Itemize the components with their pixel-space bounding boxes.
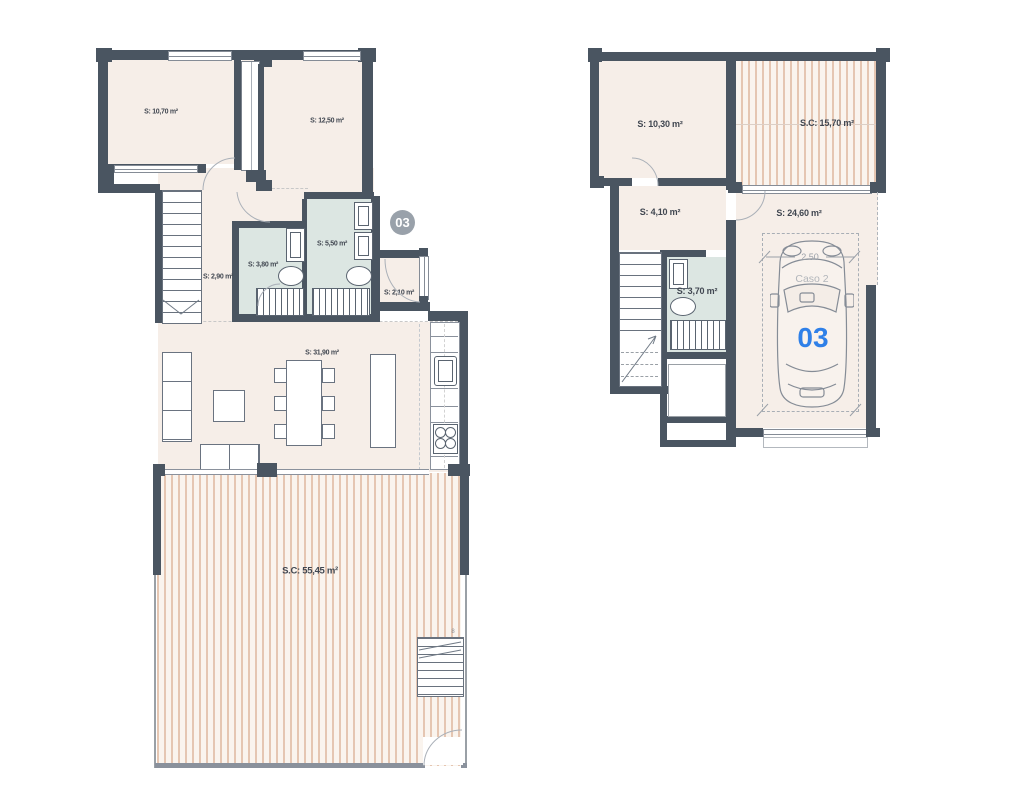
shower: [312, 288, 370, 316]
wall: [234, 221, 306, 228]
width-dimension: 2.50: [801, 252, 819, 262]
window: [419, 256, 429, 300]
room-label-bedroom: S: 10,30 m²: [637, 119, 682, 129]
toilet: [670, 297, 696, 316]
sofa: [200, 444, 260, 472]
wall: [98, 50, 108, 176]
room-label-bedroom1: S: 10,70 m²: [144, 109, 178, 116]
room-label-bath2: S: 5,50 m²: [317, 241, 347, 248]
sliding-door: [277, 469, 429, 475]
toilet: [278, 266, 304, 286]
sink: [354, 232, 373, 260]
wall: [257, 463, 277, 477]
window: [114, 165, 198, 173]
sliding-door: [165, 469, 257, 475]
wall: [665, 416, 726, 423]
wall: [234, 58, 241, 170]
wall: [736, 428, 763, 437]
coffee-table: [213, 390, 245, 422]
wall: [660, 440, 736, 447]
sofa: [162, 352, 192, 442]
sink: [286, 228, 305, 262]
toilet: [346, 266, 372, 286]
wall: [256, 180, 272, 191]
wall: [153, 473, 161, 575]
wall: [590, 52, 599, 182]
chair: [322, 396, 335, 411]
dining-table: [286, 360, 322, 446]
kitchen-sink: [434, 356, 457, 386]
terrace-railing: [465, 575, 467, 768]
wall: [460, 473, 469, 575]
wall: [598, 178, 632, 186]
kitchen-island: [370, 354, 396, 448]
window: [303, 51, 361, 61]
burner: [445, 438, 456, 449]
stairwell-void: [668, 364, 726, 417]
wall: [155, 190, 162, 323]
sink: [354, 202, 373, 230]
door-swing-area: [423, 737, 463, 765]
wall: [304, 192, 374, 199]
chair: [322, 368, 335, 383]
room-label-living: S: 31,90 m²: [305, 350, 339, 357]
floor-plan-canvas: 03: [0, 0, 1009, 796]
wall: [870, 182, 886, 193]
room-label-entry: S: 2,10 m²: [384, 290, 414, 297]
wall: [592, 52, 888, 61]
exterior-staircase: [417, 637, 464, 697]
staircase2: [619, 252, 662, 342]
wall: [876, 52, 886, 192]
dashed-tread: [621, 352, 658, 353]
wall: [610, 250, 619, 393]
staircase: [162, 190, 202, 324]
terrace-edge: [155, 763, 425, 768]
wall: [662, 250, 706, 257]
dashed-tread: [621, 376, 658, 377]
unit-number: 03: [797, 322, 828, 354]
chair: [322, 424, 335, 439]
wall: [665, 352, 726, 359]
wall: [866, 285, 876, 437]
terrace-railing: [154, 575, 156, 768]
room-label-solarium: S.C: 15,70 m²: [800, 118, 854, 128]
wall: [726, 60, 736, 190]
room-label-stair-hall: S: 2,90 m²: [203, 274, 233, 281]
dashed-tread: [621, 364, 658, 365]
wall: [658, 178, 726, 186]
driveway-apron: [763, 437, 868, 448]
room-label-bedroom2: S: 12,50 m²: [310, 118, 344, 125]
wall: [726, 220, 736, 447]
wall: [419, 296, 428, 308]
wall: [362, 50, 373, 198]
sink: [669, 259, 688, 289]
kitchen-edge-dashed: [419, 324, 420, 470]
terrace-area: [157, 473, 461, 766]
room-label-garage: S: 24,60 m²: [776, 208, 821, 218]
boundary-dashed: [877, 192, 878, 285]
shower: [256, 288, 304, 316]
case-label: Caso 2: [795, 273, 828, 285]
shower: [670, 320, 726, 350]
stair-step-count: 8: [451, 629, 454, 635]
dashed-line: [272, 188, 308, 189]
wall: [232, 221, 239, 322]
room-label-terrace: S.C: 55,45 m²: [282, 566, 338, 577]
sliding-door: [742, 185, 872, 194]
window: [168, 51, 232, 61]
hall-area2: [619, 186, 726, 250]
wall: [258, 64, 264, 170]
wall: [106, 184, 160, 193]
room-label-hall: S: 4,10 m²: [640, 207, 681, 217]
wall: [610, 186, 619, 254]
burner: [445, 427, 456, 438]
room-label-bath: S: 3,70 m²: [677, 286, 718, 296]
room-label-bath1: S: 3,80 m²: [248, 262, 278, 269]
wall: [726, 182, 736, 190]
unit-badge: 03: [390, 210, 415, 235]
